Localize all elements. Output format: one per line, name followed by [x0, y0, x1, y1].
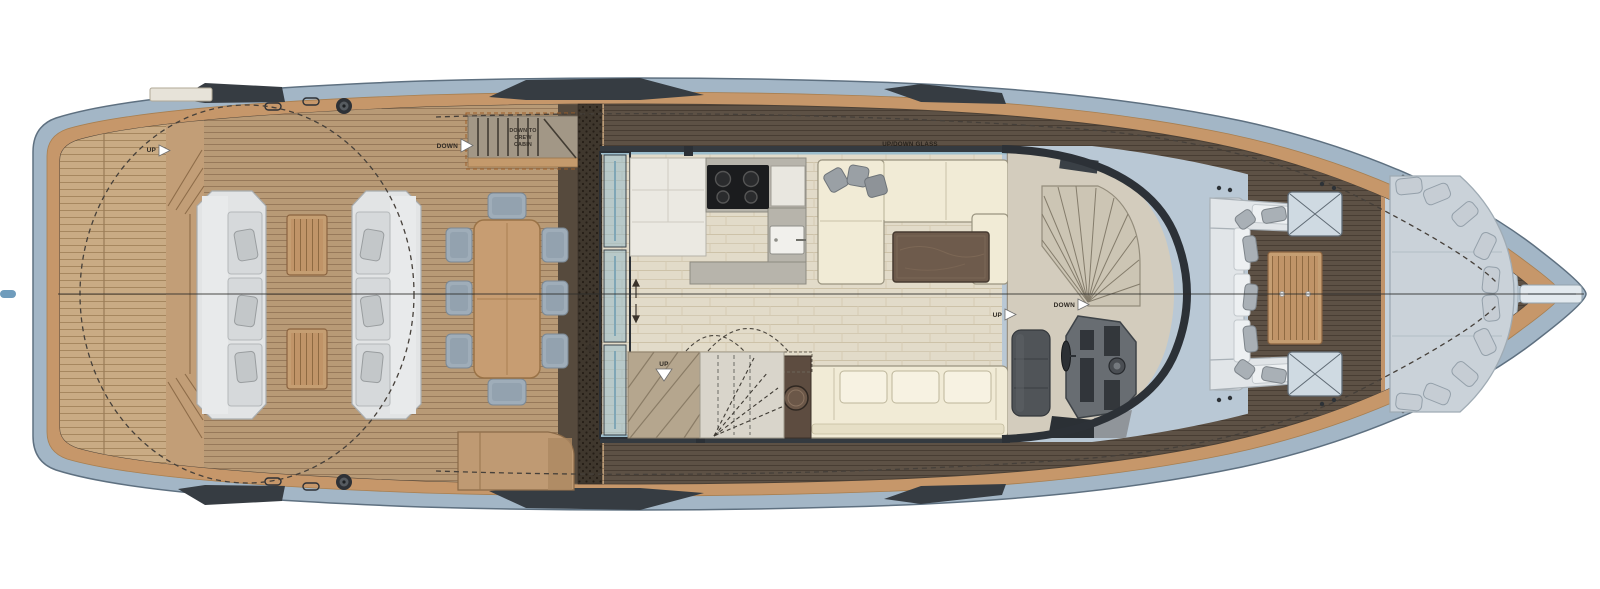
helm-console	[1062, 316, 1137, 418]
galley-peninsula	[690, 262, 806, 284]
mullion	[684, 146, 693, 156]
crew-stairs-label: CABIN	[514, 142, 532, 148]
cockpit-bar-cabinet	[458, 432, 574, 490]
cooktop-icon	[707, 165, 769, 209]
dining-table	[474, 220, 540, 378]
glass-note-text: UP/DOWN GLASS	[882, 141, 938, 148]
lounge-sofa-port	[197, 191, 266, 419]
lounge-sofa-starboard	[352, 191, 421, 419]
helm-up-text: UP	[993, 312, 1003, 319]
deck-hatch-stern	[150, 88, 212, 101]
swim-platform	[47, 100, 168, 490]
roof-support	[178, 485, 285, 505]
helm-seat	[1012, 330, 1050, 416]
bow-table	[1268, 252, 1322, 344]
salon-sofa-aft	[806, 366, 1008, 438]
transom-up-text: UP	[147, 147, 157, 154]
marble-console	[781, 352, 812, 438]
teak-coffee-table	[287, 329, 327, 389]
yacht-deck-plan: DOWN TO CREW CABIN	[0, 0, 1600, 589]
crew-cabin-stairs: DOWN TO CREW CABIN	[466, 113, 580, 169]
centerline-tick	[0, 290, 16, 298]
helm-down-text: DOWN	[1054, 302, 1075, 309]
crew-down-text: DOWN	[437, 143, 458, 150]
sink-icon	[770, 226, 806, 254]
salon-coffee-table	[893, 232, 989, 282]
hatch-icon	[1288, 192, 1342, 236]
teak-coffee-table	[287, 215, 327, 275]
hatch-icon	[1288, 352, 1342, 396]
galley-appliance	[771, 166, 805, 206]
salon-up-text: UP	[659, 361, 669, 368]
crew-stairs-label: DOWN TO	[509, 128, 536, 134]
crew-stairs-label: CREW	[514, 135, 532, 141]
sliding-glass-doors	[600, 152, 630, 438]
